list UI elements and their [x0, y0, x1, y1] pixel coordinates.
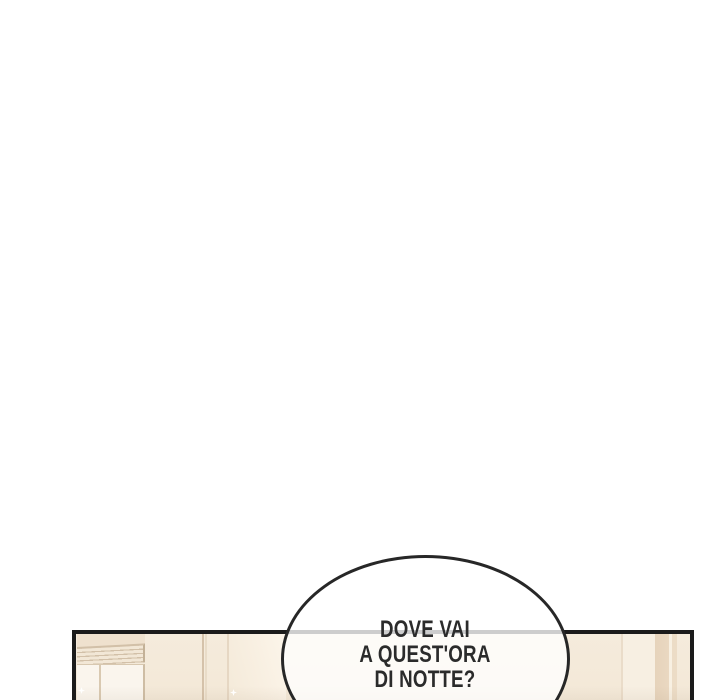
speech-line: DI NOTTE?: [308, 667, 542, 692]
speech-bubble-text: DOVE VAI A QUEST'ORA DI NOTTE?: [308, 617, 542, 692]
speech-line: A QUEST'ORA: [308, 642, 542, 667]
speech-line: DOVE VAI: [308, 617, 542, 642]
closet-cornice-molding: [77, 643, 145, 666]
comic-page: DOVE VAI A QUEST'ORA DI NOTTE?: [0, 0, 720, 700]
